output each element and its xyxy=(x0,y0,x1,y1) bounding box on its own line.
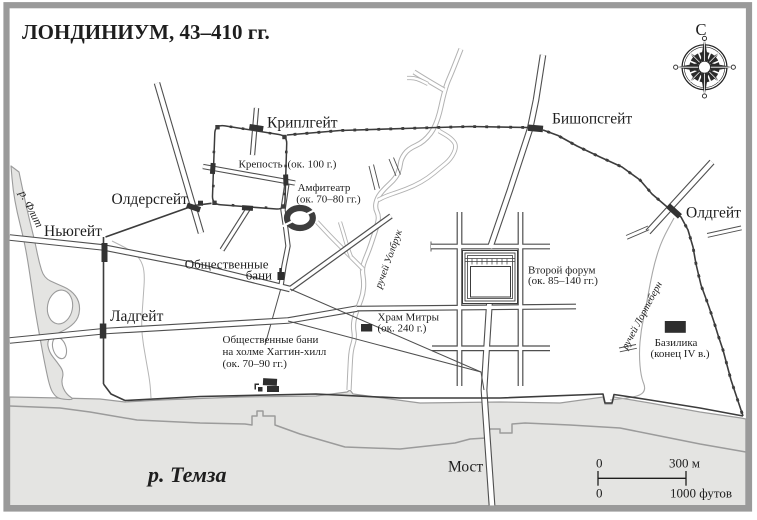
svg-text:Бишопсгейт: Бишопсгейт xyxy=(552,111,632,128)
svg-text:Олдерсгейт: Олдерсгейт xyxy=(112,191,189,208)
svg-text:0: 0 xyxy=(596,456,603,471)
svg-text:Крепость: Крепость xyxy=(239,159,283,171)
svg-text:Мост: Мост xyxy=(448,459,483,476)
svg-text:(ок. 70–90 гг.): (ок. 70–90 гг.) xyxy=(223,358,288,370)
svg-text:Амфитеатр: Амфитеатр xyxy=(298,182,351,194)
svg-text:0: 0 xyxy=(596,486,603,501)
svg-text:С: С xyxy=(695,20,706,39)
svg-text:Общественные бани: Общественные бани xyxy=(223,334,319,346)
svg-text:(ок. 100 г.): (ок. 100 г.) xyxy=(288,159,337,171)
svg-text:1000 футов: 1000 футов xyxy=(670,486,732,501)
svg-text:(ок. 85–140 гг.): (ок. 85–140 гг.) xyxy=(528,275,598,287)
svg-text:(конец IV в.): (конец IV в.) xyxy=(650,348,709,360)
svg-text:Ньюгейт: Ньюгейт xyxy=(44,223,102,240)
svg-text:(ок. 240 г.): (ок. 240 г.) xyxy=(378,323,427,335)
svg-text:300 м: 300 м xyxy=(669,456,700,471)
svg-text:Олдгейт: Олдгейт xyxy=(686,205,741,222)
svg-text:ЛОНДИНИУМ, 43–410 гг.: ЛОНДИНИУМ, 43–410 гг. xyxy=(22,20,270,44)
svg-text:Криплгейт: Криплгейт xyxy=(267,115,338,132)
svg-text:(ок. 70–80 гг.): (ок. 70–80 гг.) xyxy=(296,194,361,206)
svg-text:на холме Хаггин-хилл: на холме Хаггин-хилл xyxy=(223,346,327,358)
svg-text:бани: бани xyxy=(246,268,272,283)
svg-text:р. Темза: р. Темза xyxy=(146,462,227,487)
svg-text:Ладгейт: Ладгейт xyxy=(110,308,164,325)
